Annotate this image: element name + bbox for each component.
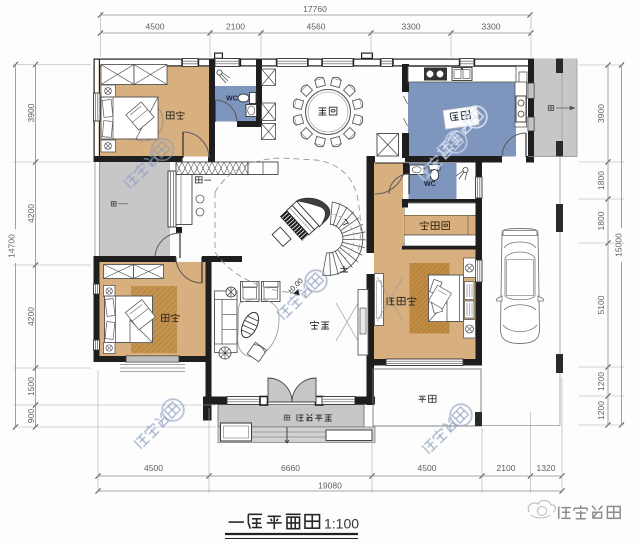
svg-text:900: 900	[26, 409, 36, 423]
svg-text:4200: 4200	[26, 307, 36, 326]
svg-text:3900: 3900	[596, 104, 606, 123]
svg-text:1500: 1500	[26, 377, 36, 396]
svg-text:17760: 17760	[303, 4, 327, 14]
svg-text:2100: 2100	[226, 22, 245, 32]
svg-text:5100: 5100	[596, 295, 606, 314]
svg-text:14700: 14700	[7, 234, 17, 258]
svg-text:4200: 4200	[26, 204, 36, 223]
svg-text:3300: 3300	[482, 22, 501, 32]
svg-text:1:100: 1:100	[324, 516, 359, 532]
svg-text:3300: 3300	[402, 22, 421, 32]
svg-text:1320: 1320	[537, 463, 556, 473]
svg-text:4560: 4560	[307, 22, 326, 32]
svg-text:3900: 3900	[26, 103, 36, 122]
svg-text:1800: 1800	[596, 171, 606, 190]
svg-text:4500: 4500	[146, 22, 165, 32]
svg-text:19080: 19080	[318, 481, 342, 491]
svg-text:WC: WC	[424, 181, 436, 188]
svg-text:2100: 2100	[497, 463, 516, 473]
svg-text:1200: 1200	[596, 401, 606, 420]
svg-text:1800: 1800	[596, 211, 606, 230]
svg-text:6660: 6660	[281, 463, 300, 473]
svg-text:1200: 1200	[596, 372, 606, 391]
svg-text:4500: 4500	[144, 463, 163, 473]
svg-text:4500: 4500	[418, 463, 437, 473]
svg-text:15000: 15000	[614, 233, 624, 257]
svg-text:WC: WC	[226, 96, 238, 103]
